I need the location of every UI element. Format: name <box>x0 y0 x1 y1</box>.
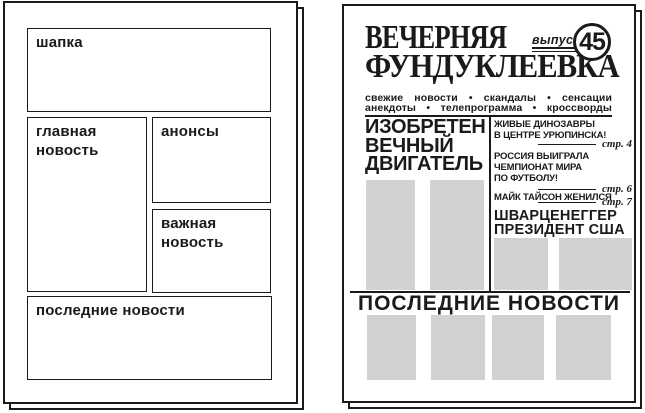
main-headline: ИЗОБРЕТЕН ВЕЧНЫЙ ДВИГАТЕЛЬ <box>365 118 495 174</box>
image-placeholder-latest-4 <box>556 315 611 380</box>
image-placeholder-latest-3 <box>492 315 544 380</box>
page-ref-rule <box>538 144 596 145</box>
section-headline: ПОСЛЕДНИЕ НОВОСТИ <box>358 293 620 314</box>
issue-rule-bottom <box>532 51 576 53</box>
page-ref-label: стр. 4 <box>602 138 632 150</box>
image-placeholder-secondary-2 <box>559 238 632 290</box>
tagline-row2: анекдоты • телепрограмма • кроссворды <box>365 103 612 113</box>
issue-number-badge: 45 <box>573 23 611 61</box>
issue-rule-top <box>532 47 576 49</box>
page-ref-1: стр. 4 <box>494 138 632 150</box>
secondary-headline: ШВАРЦЕНЕГГЕР ПРЕЗИДЕНТ США <box>494 210 634 237</box>
newspaper-layout-figure: шапка главная новость анонсы важная ново… <box>0 0 645 413</box>
image-placeholder-latest-2 <box>431 315 485 380</box>
image-placeholder-main-2 <box>430 180 484 290</box>
newspaper-page: ВЕЧЕРНЯЯ ФУНДУКЛЕЕВКА выпуск 45 свежие н… <box>342 4 636 403</box>
news-brief-2: РОССИЯ ВЫИГРАЛА ЧЕМПИОНАТ МИРА ПО ФУТБОЛ… <box>494 151 632 184</box>
template-box-important-news: важная новость <box>152 209 271 293</box>
layout-template-page: шапка главная новость анонсы важная ново… <box>3 1 298 404</box>
template-box-header: шапка <box>27 28 271 112</box>
image-placeholder-latest-1 <box>367 315 416 380</box>
image-placeholder-secondary-1 <box>494 238 548 290</box>
page-ref-rule <box>538 202 596 203</box>
page-ref-label: стр. 7 <box>602 196 632 208</box>
template-box-main-news: главная новость <box>27 117 147 292</box>
page-ref-3: стр. 7 <box>494 196 632 208</box>
template-box-latest-news: последние новости <box>27 296 272 380</box>
template-box-announcements: анонсы <box>152 117 271 203</box>
image-placeholder-main-1 <box>366 180 415 290</box>
page-ref-rule <box>538 189 596 190</box>
